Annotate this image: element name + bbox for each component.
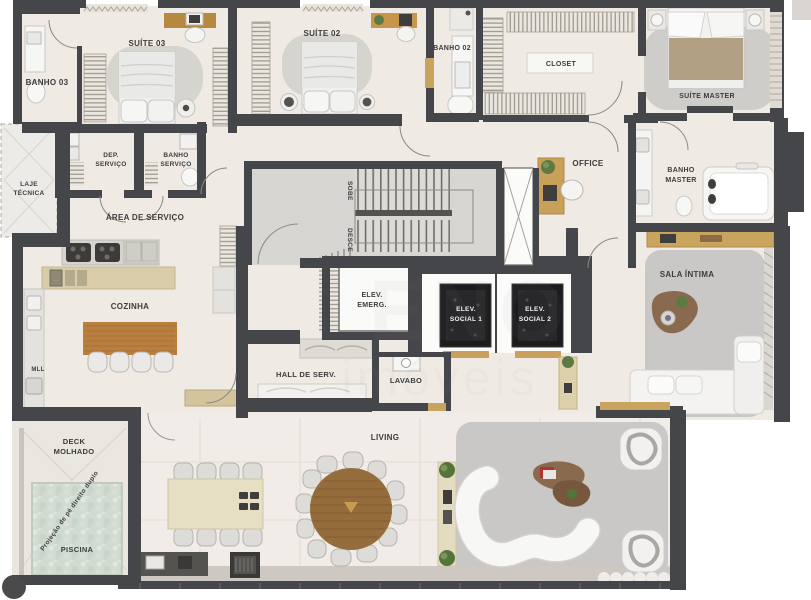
svg-text:OFFICE: OFFICE xyxy=(572,159,603,168)
svg-text:imóveis: imóveis xyxy=(341,350,538,406)
svg-text:SOCIAL 1: SOCIAL 1 xyxy=(450,316,482,323)
svg-text:SOCIAL 2: SOCIAL 2 xyxy=(519,316,551,323)
svg-text:BANHO: BANHO xyxy=(667,167,694,174)
svg-text:ÁREA DE SERVIÇO: ÁREA DE SERVIÇO xyxy=(106,213,184,222)
svg-text:ELEV.: ELEV. xyxy=(456,306,476,313)
svg-text:TÉCNICA: TÉCNICA xyxy=(14,188,45,197)
svg-text:BANHO 02: BANHO 02 xyxy=(433,45,471,52)
svg-text:LAVABO: LAVABO xyxy=(390,376,422,385)
svg-text:SERVIÇO: SERVIÇO xyxy=(160,161,191,168)
svg-text:CLOSET: CLOSET xyxy=(546,61,577,68)
svg-text:DECK: DECK xyxy=(63,437,86,446)
svg-text:DESCE: DESCE xyxy=(346,228,353,252)
svg-text:ELEV.: ELEV. xyxy=(525,306,545,313)
svg-text:DEP.: DEP. xyxy=(103,152,119,159)
svg-text:BANHO: BANHO xyxy=(163,152,188,159)
svg-text:SALA ÍNTIMA: SALA ÍNTIMA xyxy=(660,270,715,279)
svg-text:EMERG.: EMERG. xyxy=(357,302,386,309)
svg-text:SUÍTE 03: SUÍTE 03 xyxy=(128,39,165,48)
svg-text:PISCINA: PISCINA xyxy=(61,545,94,554)
svg-text:ELEV.: ELEV. xyxy=(361,292,382,299)
svg-text:COZINHA: COZINHA xyxy=(111,302,150,311)
svg-text:HALL DE SERV.: HALL DE SERV. xyxy=(276,370,336,379)
svg-text:LIVING: LIVING xyxy=(371,433,399,442)
svg-text:MOLHADO: MOLHADO xyxy=(54,447,95,456)
svg-text:MASTER: MASTER xyxy=(665,177,696,184)
svg-text:SERVIÇO: SERVIÇO xyxy=(95,161,126,168)
svg-text:MLL: MLL xyxy=(31,367,44,373)
svg-text:SUÍTE MASTER: SUÍTE MASTER xyxy=(679,91,735,100)
svg-text:SOBE: SOBE xyxy=(346,181,353,201)
svg-text:BANHO 03: BANHO 03 xyxy=(26,78,69,87)
svg-text:LAJE: LAJE xyxy=(20,181,38,188)
svg-text:SUÍTE 02: SUÍTE 02 xyxy=(303,29,340,38)
